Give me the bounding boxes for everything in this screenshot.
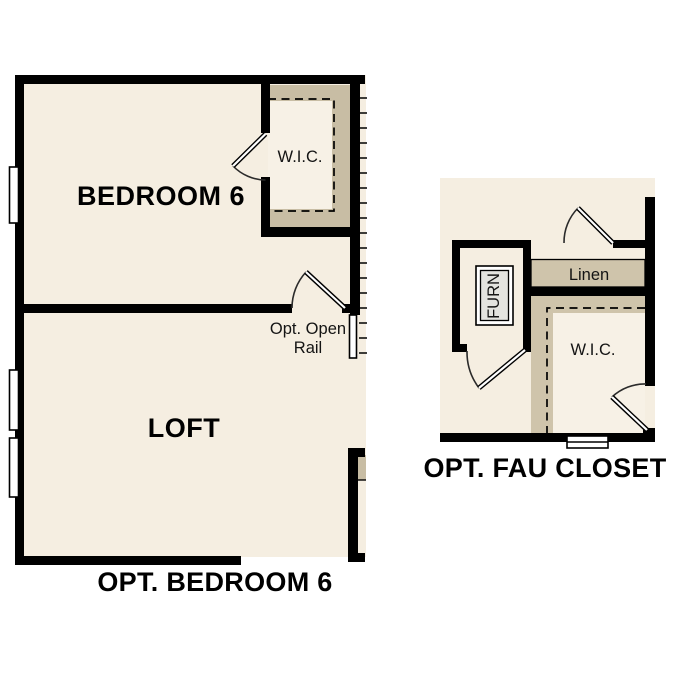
room-label-bedroom6: BEDROOM 6	[77, 181, 245, 211]
plan-title-opt-bedroom6: OPT. BEDROOM 6	[97, 567, 332, 597]
window-marker	[10, 167, 19, 223]
room-label-wic: W.I.C.	[278, 148, 323, 166]
window-marker	[10, 370, 19, 430]
room-label-wic: W.I.C.	[571, 341, 616, 359]
rail-post	[350, 315, 357, 358]
stair-pocket-shelf	[358, 455, 366, 480]
label-furnace: FURN	[485, 273, 503, 319]
plan-title-opt-fau-closet: OPT. FAU CLOSET	[423, 453, 666, 483]
label-linen: Linen	[569, 266, 609, 284]
annotation-open-rail-line1: Opt. Open	[270, 320, 346, 338]
room-label-loft: LOFT	[148, 413, 220, 443]
annotation-open-rail-line2: Rail	[294, 339, 322, 357]
floor-plan-sheet: BEDROOM 6 W.I.C. LOFT Opt. Open Rail OPT…	[0, 0, 687, 687]
floor-plan-canvas: BEDROOM 6 W.I.C. LOFT Opt. Open Rail OPT…	[0, 0, 687, 687]
window-marker	[10, 438, 19, 497]
plan-opt-bedroom-6: BEDROOM 6 W.I.C. LOFT Opt. Open Rail OPT…	[10, 75, 368, 597]
plan-opt-fau-closet: FURN Linen W.I.C. OPT. FAU CLOSET	[423, 178, 666, 483]
